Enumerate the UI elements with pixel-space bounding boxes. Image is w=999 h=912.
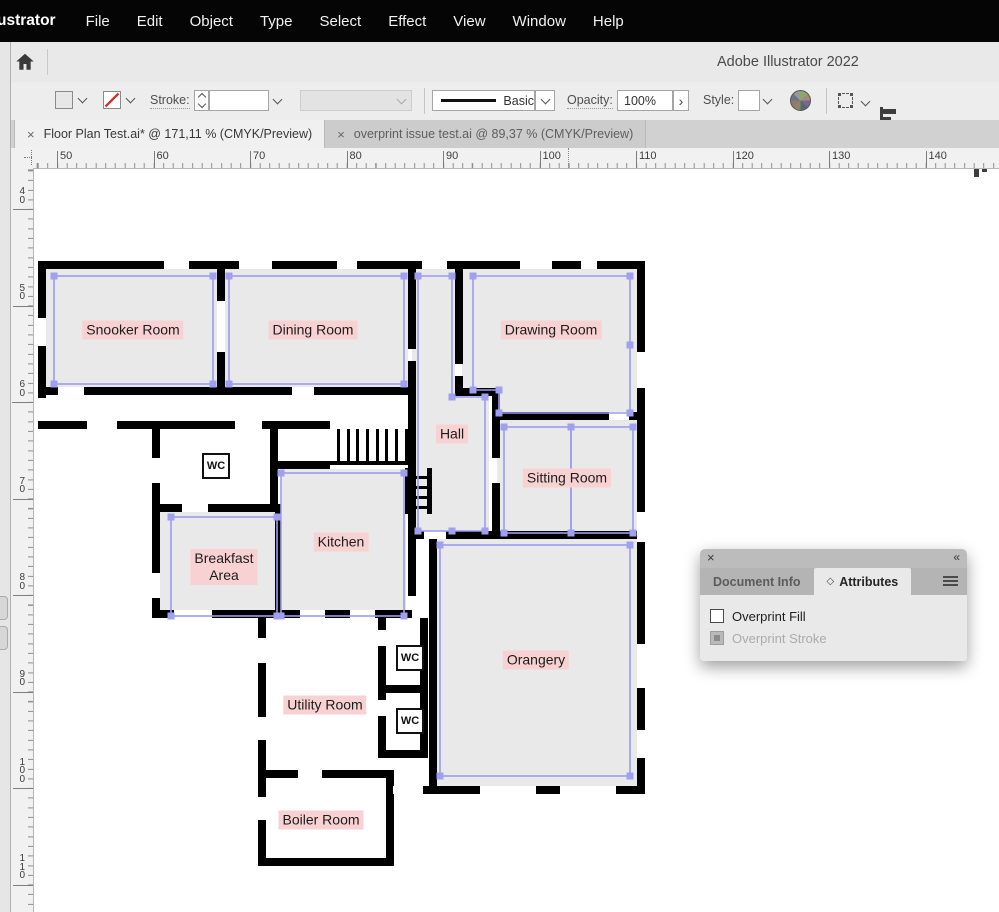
selection-handle[interactable] [630,424,637,431]
text-anchor-point[interactable] [127,325,133,331]
selection-handle[interactable] [568,530,575,537]
bounding-box-options-icon[interactable] [838,93,853,108]
ruler-major-tick [250,151,251,168]
text-anchor-point[interactable] [533,656,539,662]
overprint-fill-row: Overprint Fill [710,605,967,627]
ruler-number: 70 [17,478,25,495]
selection-handle[interactable] [415,273,422,280]
ruler-major-tick [13,885,33,886]
selection-handle[interactable] [226,273,233,280]
panel-edge-tab[interactable] [0,596,8,620]
overprint-fill-checkbox[interactable] [710,609,724,623]
ruler-number: 90 [17,671,25,688]
selection-handle[interactable] [51,381,58,388]
menu-edit[interactable]: Edit [137,13,163,30]
selection-handle[interactable] [482,528,489,535]
vertical-ruler[interactable]: 405060708090100110 [10,168,34,912]
selection-handle[interactable] [51,273,58,280]
chevron-down-icon [763,95,773,105]
profile-name: Basic [503,94,534,108]
ruler-major-tick [13,595,33,596]
selection-handle[interactable] [168,514,175,521]
stroke-profile-preview [441,99,496,102]
ruler-major-tick [57,151,58,168]
ruler-major-tick [347,151,348,168]
ruler-number: 80 [350,150,362,162]
illustrator-window: Snooker RoomDining RoomDrawing RoomHallS… [0,0,999,912]
menu-bar: ustrator FileEditObjectTypeSelectEffectV… [0,0,999,42]
selection-handle[interactable] [501,424,508,431]
selection-handle[interactable] [630,530,637,537]
style-label: Style: [703,93,734,107]
horizontal-ruler[interactable]: 5060708090100110120130140 [33,148,999,169]
selection-handle[interactable] [501,530,508,537]
overprint-fill-label: Overprint Fill [732,609,806,624]
selection-handle[interactable] [210,381,217,388]
ruler-major-tick [13,306,33,307]
ruler-number: 50 [17,285,25,302]
text-anchor-point[interactable] [338,538,344,544]
stroke-color-swatch[interactable] [103,91,121,109]
toolbar-divider [424,88,425,114]
ruler-minor-ticks [28,168,33,912]
tab-document-info[interactable]: Document Info [700,568,814,595]
selection-handle[interactable] [274,613,281,620]
home-icon[interactable] [14,51,36,78]
document-tab-0[interactable]: ×Floor Plan Test.ai* @ 171,11 % (CMYK/Pr… [14,120,325,148]
bounding-box-dropdown[interactable] [858,94,873,112]
ruler-number: 40 [17,188,25,205]
ruler-number: 90 [446,150,458,162]
appbar-divider [47,49,48,75]
tab-label: overprint issue test.ai @ 89,37 % (CMYK/… [354,127,633,141]
ruler-number: 110 [17,855,25,881]
ruler-major-tick [926,151,927,168]
stroke-color-dropdown[interactable] [123,91,138,109]
toolbar-divider [826,88,827,114]
selection-handle[interactable] [210,273,217,280]
panel-tabs: Document Info ◇Attributes [700,568,967,595]
selection-handle[interactable] [496,410,503,417]
ruler-major-tick [13,788,33,789]
text-anchor-point[interactable] [244,570,250,576]
chevron-down-icon [273,95,283,105]
selection-handle[interactable] [470,273,477,280]
overprint-stroke-label: Overprint Stroke [732,631,827,646]
selection-handle[interactable] [168,613,175,620]
ruler-major-tick [733,151,734,168]
selection-handle[interactable] [437,773,444,780]
selection-handle[interactable] [627,410,634,417]
attributes-panel: × « Document Info ◇Attributes Overprint … [700,549,967,661]
ruler-number: 50 [60,150,72,162]
ruler-number: 130 [832,150,850,162]
opacity-more-button[interactable]: › [673,90,689,111]
menu-view[interactable]: View [453,13,485,30]
ruler-number: 70 [253,150,265,162]
selection-handle[interactable] [401,613,408,620]
ruler-number: 80 [17,574,25,591]
profile-dropdown[interactable] [535,90,555,111]
tab-label: Document Info [713,575,801,589]
ruler-cursor-indicator [568,148,569,168]
chevron-down-icon [78,94,88,104]
style-dropdown[interactable] [760,92,775,110]
close-icon[interactable]: × [27,127,35,142]
left-panel-edge [0,42,11,912]
text-anchor-point[interactable] [598,475,604,481]
ruler-major-tick [540,151,541,168]
selection-handle[interactable] [274,514,281,521]
overprint-stroke-checkbox [710,631,724,645]
style-swatch[interactable] [738,90,760,111]
ruler-number: 100 [17,759,25,785]
fill-color-dropdown[interactable] [75,91,90,109]
chevron-down-icon [197,100,205,108]
overprint-stroke-row: Overprint Stroke [710,627,967,649]
ruler-number: 120 [736,150,754,162]
tab-attributes[interactable]: ◇Attributes [814,568,912,595]
close-icon[interactable]: × [337,127,345,142]
selection-handle[interactable] [482,394,489,401]
menu-items: FileEditObjectTypeSelectEffectViewWindow… [86,13,624,30]
menu-object[interactable]: Object [190,13,233,30]
ruler-number: 140 [929,150,947,162]
menu-effect[interactable]: Effect [388,13,426,30]
selection-handle[interactable] [401,470,408,477]
selection-handle[interactable] [627,773,634,780]
room-fills [46,269,637,786]
ruler-number: 60 [157,150,169,162]
selection-handle[interactable] [568,424,575,431]
menu-select[interactable]: Select [320,13,362,30]
stroke-weight-label[interactable]: Stroke: [150,93,190,109]
document-tab-bar: ×Floor Plan Test.ai* @ 171,11 % (CMYK/Pr… [0,120,999,149]
opacity-label[interactable]: Opacity: [567,93,613,109]
text-anchor-point[interactable] [307,325,313,331]
ruler-origin-corner[interactable] [10,148,34,169]
panel-cycle-icon: ◇ [827,576,835,587]
panel-menu-icon[interactable] [943,576,958,589]
ruler-major-tick [829,151,830,168]
chevron-down-icon [126,94,136,104]
selection-handle[interactable] [496,387,503,394]
tab-label: Floor Plan Test.ai* @ 171,11 % (CMYK/Pre… [44,127,313,141]
origin-crosshair-icon [31,150,32,165]
tab-label: Attributes [839,575,898,589]
selection-handle[interactable] [437,542,444,549]
panel-header: × « [700,549,967,568]
selection-handle[interactable] [401,273,408,280]
control-bar: Stroke: Basic Opacity: 100% › Style: [0,82,999,121]
chevron-down-icon [397,94,407,104]
ruler-minor-ticks [33,163,999,168]
ruler-major-tick [154,151,155,168]
chevron-down-icon [861,97,871,107]
recolor-artwork-icon[interactable] [790,90,811,111]
stroke-weight-stepper[interactable] [194,90,209,111]
selection-handle[interactable] [449,394,456,401]
selection-handle[interactable] [449,528,456,535]
ruler-major-tick [636,151,637,168]
close-icon[interactable]: × [707,550,715,565]
selection-handle[interactable] [627,273,634,280]
collapse-icon[interactable]: « [953,550,959,564]
menu-help[interactable]: Help [593,13,624,30]
selection-handle[interactable] [226,381,233,388]
selection-handle[interactable] [627,342,634,349]
stroke-weight-input[interactable] [209,90,269,111]
selection-handle[interactable] [401,381,408,388]
document-tab-1[interactable]: ×overprint issue test.ai @ 89,37 % (CMYK… [325,120,646,148]
brush-definition-dropdown-disabled [300,90,412,111]
app-bar: Adobe Illustrator 2022 [0,42,999,83]
menu-window[interactable]: Window [513,13,566,30]
chevron-down-icon [540,94,550,104]
variable-width-profile[interactable]: Basic [432,90,535,111]
ruler-major-tick [443,151,444,168]
selection-handle[interactable] [470,387,477,394]
ruler-major-tick [13,209,33,210]
menu-type[interactable]: Type [260,13,293,30]
stroke-weight-dropdown[interactable] [270,92,285,110]
ruler-number: 60 [17,381,25,398]
ruler-major-tick [13,402,33,403]
panel-body: Overprint Fill Overprint Stroke [700,595,967,661]
app-menu-label[interactable]: ustrator [0,12,56,30]
opacity-input[interactable]: 100% [617,90,673,111]
menu-file[interactable]: File [86,13,110,30]
selection-handle[interactable] [415,528,422,535]
ruler-major-tick [13,499,33,500]
fill-color-swatch[interactable] [55,91,73,109]
selection-handle[interactable] [449,273,456,280]
ruler-number: 110 [639,150,657,162]
selection-handle[interactable] [627,542,634,549]
app-title: Adobe Illustrator 2022 [717,54,859,70]
selection-handle[interactable] [278,470,285,477]
ruler-major-tick [13,692,33,693]
panel-edge-tab[interactable] [0,626,8,650]
ruler-number: 100 [543,150,561,162]
